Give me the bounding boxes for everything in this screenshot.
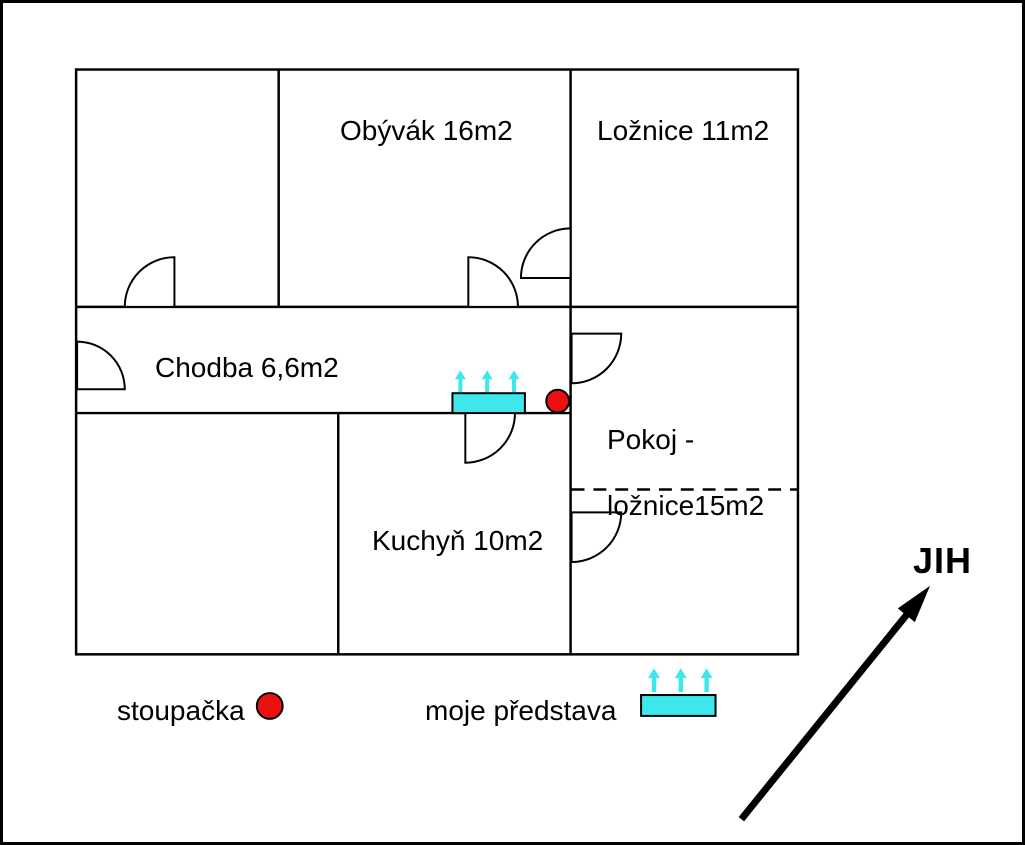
legend-riser-circle: [257, 693, 283, 719]
floor-plan-canvas: Obývák 16m2 Ložnice 11m2 Chodba 6,6m2 Po…: [0, 0, 1025, 845]
radiator-proposal-group: [452, 370, 524, 413]
heat-flow-arrow-icon: [701, 668, 713, 692]
room-label-chodba: Chodba 6,6m2: [155, 352, 339, 384]
door-arc-obyvak: [468, 257, 518, 307]
legend-radiator-label: moje představa: [425, 695, 616, 727]
room-label-obyvak: Obývák 16m2: [340, 115, 513, 147]
radiator-rect: [452, 393, 524, 413]
south-arrow-shaft: [741, 612, 909, 820]
heat-flow-arrow-icon: [648, 668, 660, 692]
room-label-loznice: Ložnice 11m2: [597, 115, 769, 147]
room-label-pokoj-line2: ložnice15m2: [607, 490, 764, 521]
heat-flow-arrow-icon: [482, 370, 493, 392]
room-label-kuchyn: Kuchyň 10m2: [372, 525, 543, 557]
legend-radiator-rect: [641, 695, 715, 716]
door-arc-chodba: [77, 342, 125, 390]
compass-south-label: JIH: [913, 541, 972, 581]
legend-riser-label: stoupačka: [117, 695, 245, 727]
south-direction-arrow: [741, 586, 930, 819]
door-arc-loznice: [521, 228, 571, 278]
doors-group: [77, 228, 621, 562]
heat-flow-arrow-icon: [509, 370, 520, 392]
heat-flow-arrow-icon: [455, 370, 466, 392]
door-arc-room-top-left: [125, 257, 175, 307]
room-label-pokoj: Pokoj - ložnice15m2: [607, 390, 764, 522]
heat-flow-arrow-icon: [675, 668, 687, 692]
door-arc-pokoj-upper: [572, 334, 622, 384]
room-label-pokoj-line1: Pokoj -: [607, 424, 694, 455]
riser-circle: [546, 390, 569, 413]
door-arc-kuchyn: [465, 413, 515, 463]
